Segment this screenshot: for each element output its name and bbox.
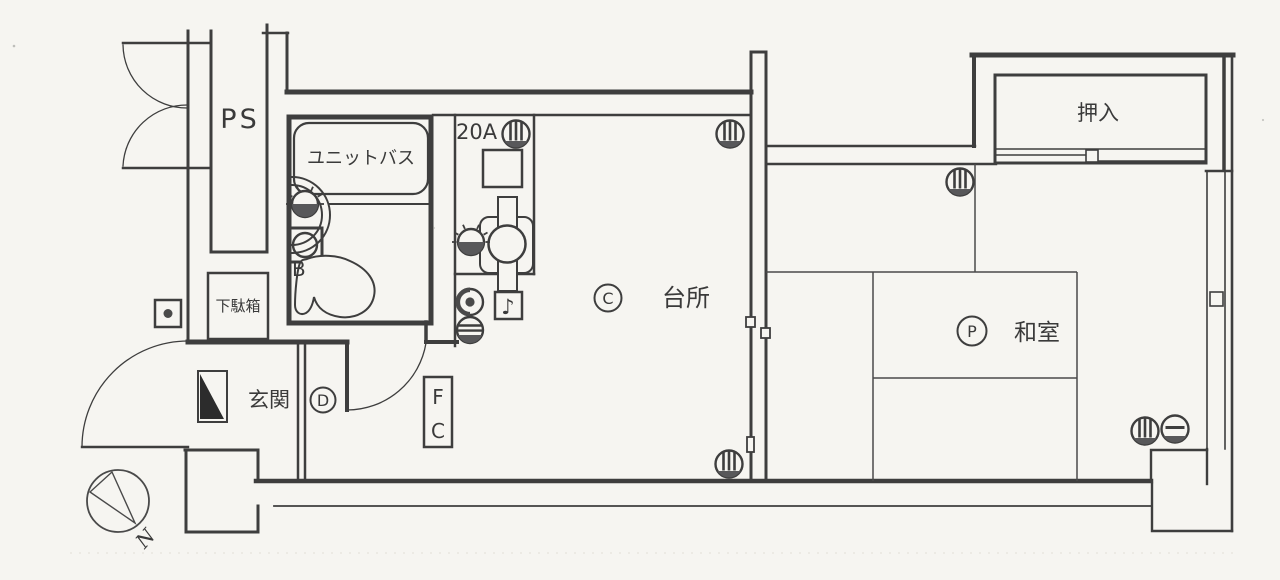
kitchen-fixtures [480,150,533,319]
vent-icon [947,169,974,196]
bath-point-label: B [292,257,306,281]
toilet [295,256,375,318]
drain-icon [457,289,483,315]
scan-speckle [1262,119,1264,121]
divider-slider-handle-b [761,328,770,338]
compass [87,470,149,532]
compass-circle [87,470,149,532]
floor-plan-drawing: PS ユニットバス 20A B 下駄箱 玄関 D F C C 台所 P 和室 押… [0,0,1280,580]
divider-slider-handle-a [746,317,755,327]
sink-bowl [489,226,526,263]
stove-box [483,150,522,187]
outlet-icon [1162,416,1189,443]
faucet-icon [286,187,324,217]
ps-label: PS [220,104,259,135]
faucet-icon [452,225,490,255]
scan-speckle [13,45,16,48]
entry-step-marker-triangle [200,374,224,419]
wall-se-protrusion [1152,484,1232,531]
fc-label-bottom: C [431,419,445,443]
east-window-handle [1210,292,1223,306]
divider-slider-stop [747,437,754,452]
intercom-dot [164,309,173,318]
vent-icon [503,121,530,148]
floor-plan-sheet: PS ユニットバス 20A B 下駄箱 玄関 D F C C 台所 P 和室 押… [0,0,1280,580]
unit-bath-label: ユニットバス [307,148,415,169]
labels: PS ユニットバス 20A B 下駄箱 玄関 D F C C 台所 P 和室 押… [130,101,1119,554]
meterbox-door-arc-top [123,45,188,108]
vent-icon [1132,418,1159,445]
kitchen-door-arc [347,343,426,410]
vent-icon [716,451,743,478]
shoe-cabinet-label: 下駄箱 [215,297,260,315]
kitchen-label: 台所 [662,284,710,312]
scan-speckle [433,227,435,229]
fc-label-top: F [432,385,444,409]
kitchen-marker-letter: C [602,289,613,308]
washitsu-marker-letter: P [967,322,977,341]
genkan-marker-letter: D [317,391,329,410]
entrance-door-arc [82,341,188,447]
meterbox-door-arc-bottom [123,105,188,166]
oshiire-label: 押入 [1077,101,1119,125]
breaker-label: 20A [456,120,498,144]
washitsu-label: 和室 [1014,320,1060,346]
room-marker-circles [311,285,987,448]
oshiire-fusuma-handle [1086,150,1098,162]
gas-icon [457,317,483,343]
wall-sw-protrusion [186,450,258,532]
vent-icon [717,121,744,148]
chime-note-glyph: ♪ [501,295,514,319]
utility-symbols [286,121,1189,478]
wall-se-notch [1151,450,1207,481]
genkan-label: 玄関 [248,388,290,412]
